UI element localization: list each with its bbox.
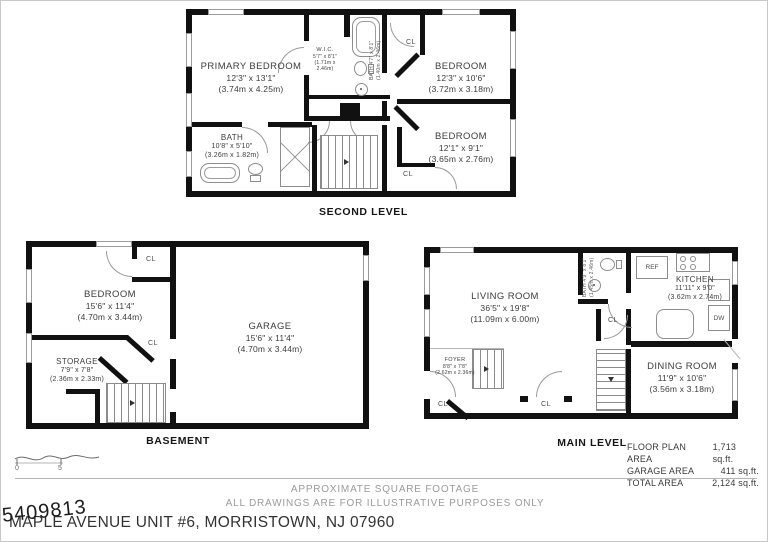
second-level-plan: CL CL PRIMARY BEDROO: [186, 9, 516, 197]
wall: [420, 15, 425, 55]
room-label-wic: W.I.C. 5'7" x 8'1" (1.71m x 2.46m): [306, 47, 344, 73]
wall: [170, 359, 176, 389]
window: [424, 309, 430, 337]
wall: [397, 127, 402, 163]
stove-burner-icon: [690, 264, 696, 270]
wall: [564, 396, 572, 402]
window: [440, 247, 474, 253]
closet-label: CL: [136, 256, 166, 263]
diagonal-wall: [394, 53, 419, 78]
room-label-primary-bedroom: PRIMARY BEDROOM 12'3" x 13'1" (3.74m x 4…: [200, 61, 302, 94]
wall: [382, 125, 387, 191]
wall: [32, 335, 128, 340]
wall: [520, 396, 528, 402]
closet-label: CL: [600, 317, 626, 324]
wall: [626, 253, 631, 293]
stairs-direction-arrow: [130, 400, 135, 406]
stairs: [320, 135, 378, 189]
toilet-icon: [616, 260, 622, 269]
toilet-icon: [250, 175, 261, 182]
door-arc: [536, 371, 562, 397]
window: [208, 9, 244, 15]
closet-label: CL: [140, 340, 166, 347]
room-label-bath-main: BATH 10'8" x 5'10" (3.26m x 1.82m): [196, 133, 268, 161]
scale-zero: 0: [15, 465, 19, 472]
stairs-direction-arrow: [344, 159, 349, 165]
door-arc: [435, 167, 457, 189]
toilet-icon: [354, 61, 367, 76]
room-label-foyer: FOYER 8'8" x 7'8" (2.62m x 2.36m): [434, 357, 476, 376]
scale-bar: [13, 451, 133, 467]
window: [363, 255, 369, 281]
closet-label: CL: [395, 171, 421, 178]
disclaimer-line-2: ALL DRAWINGS ARE FOR ILLUSTRATIVE PURPOS…: [1, 498, 768, 509]
wall: [304, 15, 309, 41]
window: [424, 267, 430, 295]
area-value: 411 sq.ft.: [721, 465, 759, 477]
closet-label: CL: [530, 401, 562, 408]
second-level-title: SECOND LEVEL: [301, 206, 426, 218]
room-label-dining-room: DINING ROOM 11'9" x 10'6" (3.56m x 3.18m…: [630, 361, 734, 394]
wall: [578, 299, 608, 304]
wall: [596, 309, 601, 341]
wall: [132, 277, 170, 282]
window: [26, 269, 32, 303]
window: [510, 119, 516, 157]
disclaimer-line-1: APPROXIMATE SQUARE FOOTAGE: [1, 484, 768, 495]
toilet-icon: [248, 163, 263, 175]
room-label-living-room: LIVING ROOM 36'5" x 19'8" (11.09m x 6.00…: [440, 291, 570, 324]
window: [96, 241, 132, 247]
window: [442, 9, 480, 15]
dishwasher: DW: [708, 305, 730, 331]
bathtub-icon: [200, 163, 240, 183]
window: [186, 33, 192, 67]
room-label-powder-bath: BATH 4'9" x 8'1" (1.45m x 2.46m): [582, 257, 596, 297]
window: [186, 93, 192, 127]
area-value: 1,713 sq.ft.: [713, 441, 759, 465]
wall: [95, 394, 100, 423]
area-table: FLOOR PLAN AREA 1,713 sq.ft. GARAGE AREA…: [627, 441, 759, 489]
wall: [192, 122, 242, 127]
kitchen-island: [656, 309, 694, 339]
floor-plan-sheet: CL CL PRIMARY BEDROO: [0, 0, 768, 542]
wall: [170, 247, 176, 339]
wall: [344, 15, 350, 37]
area-row: FLOOR PLAN AREA 1,713 sq.ft.: [627, 441, 759, 465]
stove-burner-icon: [680, 264, 686, 270]
room-label-kitchen: KITCHEN 11'11" x 9'0" (3.62m x 2.74m): [656, 275, 734, 303]
closet-label: CL: [432, 401, 454, 408]
wall: [397, 99, 510, 104]
window: [510, 31, 516, 69]
door-arc: [106, 251, 132, 277]
stairs-direction-arrow: [608, 377, 614, 382]
wall: [382, 15, 387, 73]
area-label: FLOOR PLAN AREA: [627, 441, 713, 465]
room-label-bedroom-top-right: BEDROOM 12'3" x 10'6" (3.72m x 3.18m): [420, 61, 502, 94]
stairs-direction-arrow: [484, 366, 489, 372]
room-label-bath-upper: BATH 4'7" x 8'1" (1.40m x 2.46m): [369, 23, 383, 97]
basement-plan: CL CL BEDROOM 15'6" x 11'4" (4.70m x 3.4…: [26, 241, 369, 429]
room-label-basement-bedroom: BEDROOM 15'6" x 11'4" (4.70m x 3.44m): [54, 289, 166, 322]
wall: [631, 341, 732, 347]
room-label-storage: STORAGE 7'9" x 7'8" (2.36m x 2.33m): [36, 357, 118, 385]
closet-label: CL: [398, 39, 424, 46]
room-label-bedroom-mid-right: BEDROOM 12'1" x 9'1" (3.65m x 2.76m): [420, 131, 502, 164]
stove-burner-icon: [680, 256, 686, 262]
footer-divider: [15, 478, 757, 479]
wall: [170, 412, 176, 423]
main-level-plan: BATH 4'9" x 8'1" (1.45m x 2.46m) CL REF …: [424, 247, 738, 419]
stairs: [106, 383, 166, 423]
window: [26, 333, 32, 363]
toilet-icon: [600, 258, 615, 271]
area-label: GARAGE AREA: [627, 465, 694, 477]
area-row: GARAGE AREA 411 sq.ft.: [627, 465, 759, 477]
wall: [312, 125, 317, 191]
window: [186, 151, 192, 177]
stove-burner-icon: [690, 256, 696, 262]
scale-five: 5: [58, 465, 62, 472]
room-label-garage: GARAGE 15'6" x 11'4" (4.70m x 3.44m): [212, 321, 328, 354]
sink-icon: [355, 83, 368, 96]
basement-title: BASEMENT: [118, 435, 238, 447]
shower-icon: [280, 127, 310, 187]
